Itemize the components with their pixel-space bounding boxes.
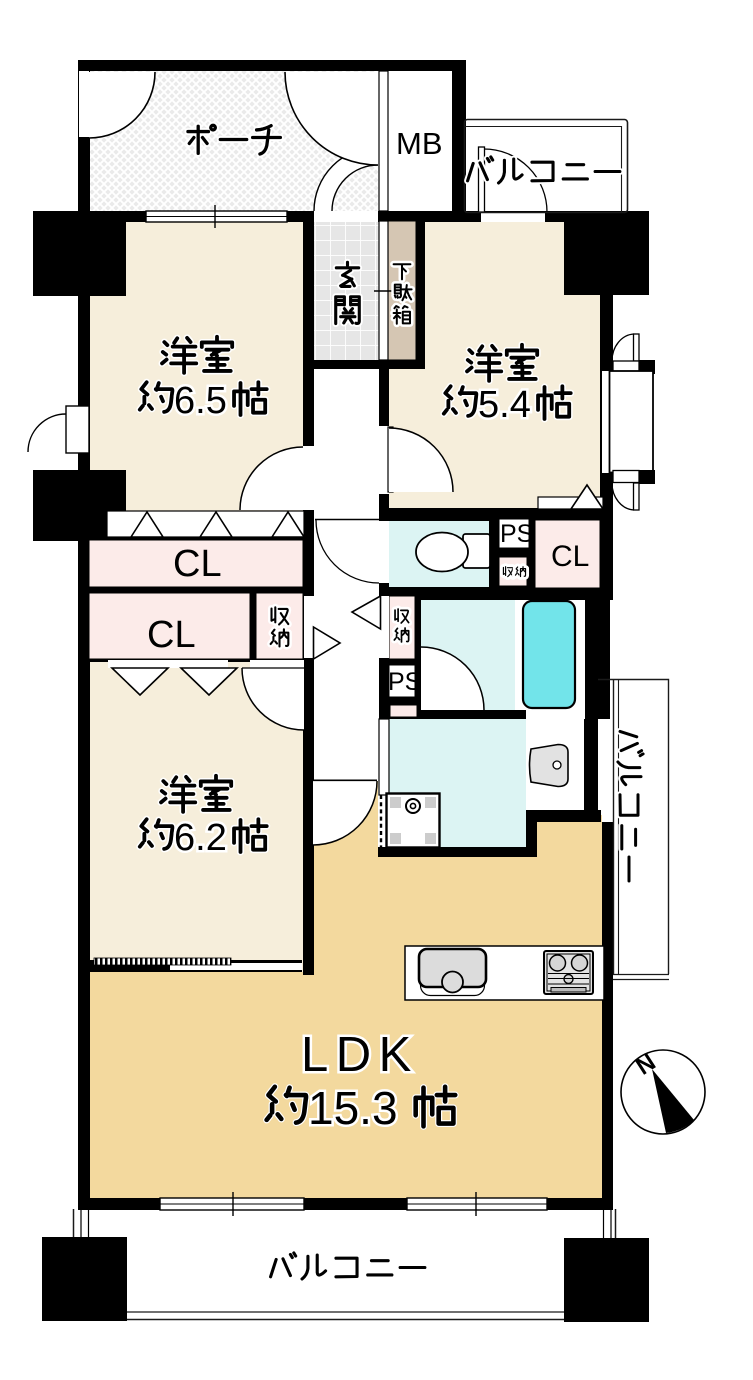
svg-text:CL: CL xyxy=(147,614,196,656)
svg-text:6.2: 6.2 xyxy=(174,817,227,859)
svg-text:15.3: 15.3 xyxy=(308,1082,398,1134)
svg-text:5.4: 5.4 xyxy=(478,384,531,426)
svg-text:6.5: 6.5 xyxy=(174,380,227,422)
svg-text:MB: MB xyxy=(396,126,443,161)
svg-text:CL: CL xyxy=(551,540,589,573)
svg-text:PS: PS xyxy=(500,520,533,548)
svg-text:PS: PS xyxy=(388,668,421,696)
svg-text:LDK: LDK xyxy=(301,1028,419,1082)
svg-text:CL: CL xyxy=(173,543,222,585)
